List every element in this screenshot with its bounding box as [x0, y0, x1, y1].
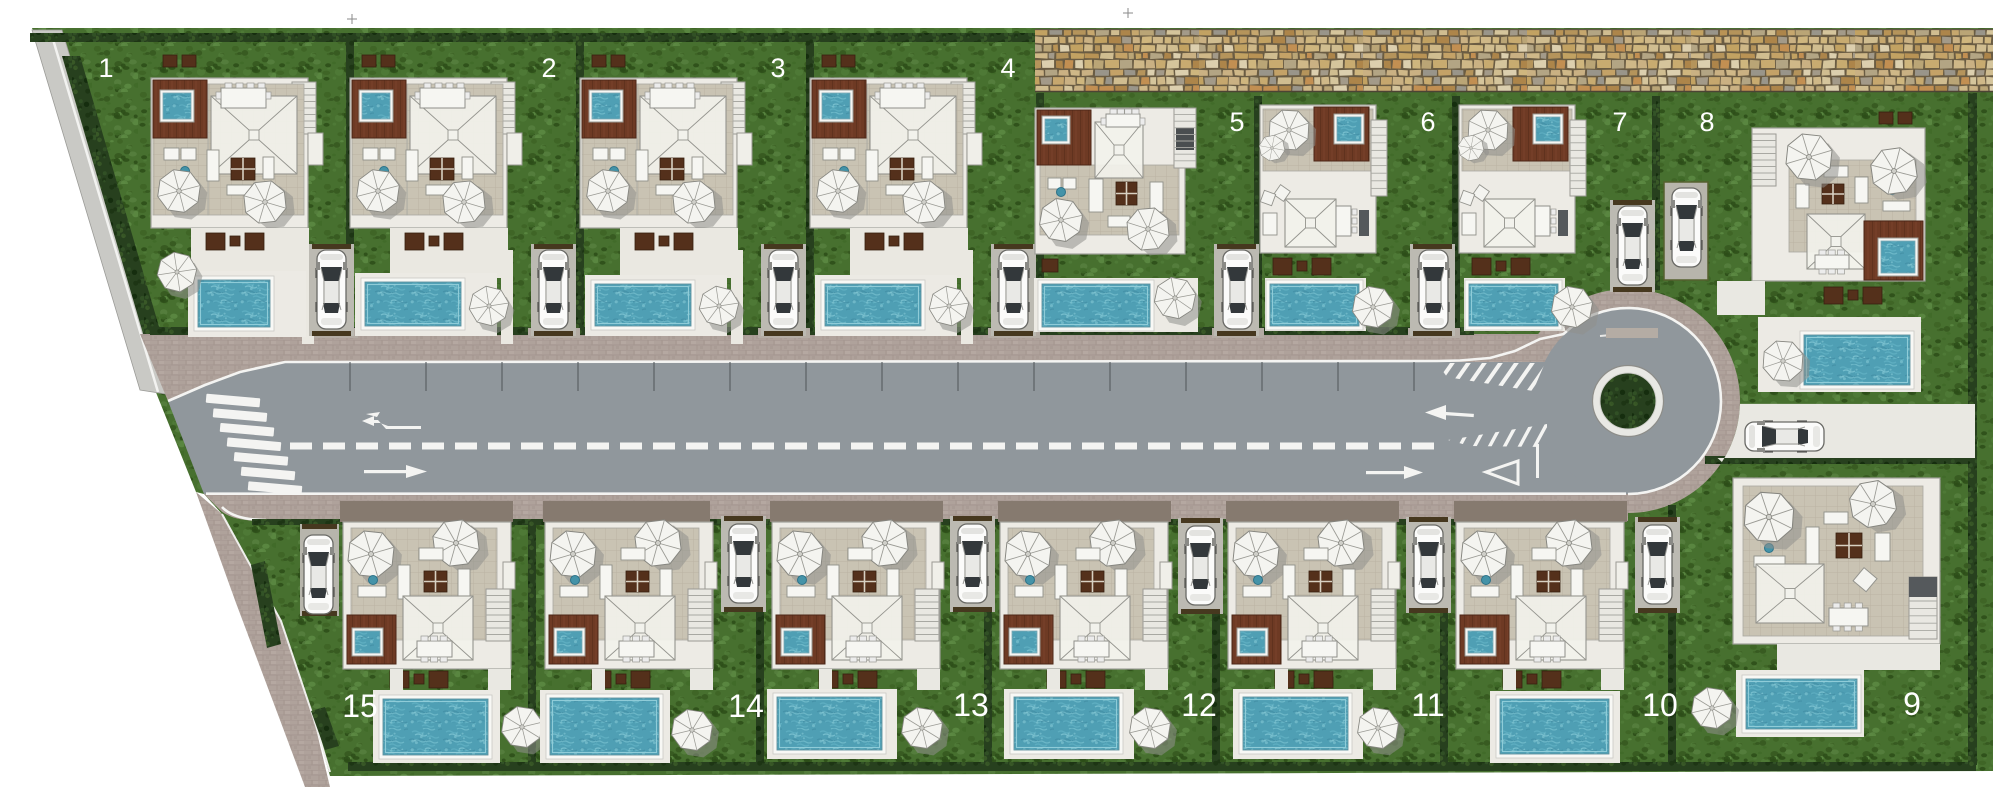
svg-text:11: 11 [1411, 687, 1444, 723]
svg-text:6: 6 [1420, 107, 1435, 137]
svg-text:3: 3 [770, 53, 785, 83]
svg-text:2: 2 [541, 53, 556, 83]
svg-text:1: 1 [98, 53, 113, 83]
svg-text:13: 13 [953, 687, 989, 723]
svg-text:5: 5 [1229, 107, 1244, 137]
svg-text:7: 7 [1612, 107, 1627, 137]
svg-text:10: 10 [1642, 687, 1678, 723]
svg-text:8: 8 [1699, 107, 1714, 137]
svg-text:9: 9 [1903, 686, 1921, 722]
svg-text:12: 12 [1181, 687, 1217, 723]
svg-text:15: 15 [342, 688, 378, 724]
svg-text:14: 14 [728, 688, 764, 724]
svg-text:4: 4 [1000, 53, 1015, 83]
